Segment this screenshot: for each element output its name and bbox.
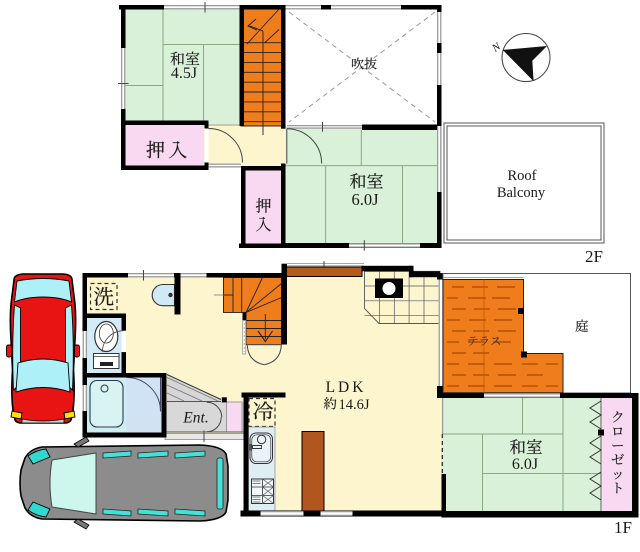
- svg-text:6.0J: 6.0J: [351, 190, 379, 209]
- svg-text:2F: 2F: [585, 247, 603, 266]
- svg-text:14.6J: 14.6J: [338, 397, 369, 413]
- svg-text:Balcony: Balcony: [497, 185, 546, 201]
- svg-text:Roof: Roof: [508, 168, 537, 184]
- svg-text:4.5J: 4.5J: [171, 65, 197, 82]
- svg-text:LDK: LDK: [326, 379, 367, 396]
- svg-text:1F: 1F: [614, 518, 632, 537]
- svg-text:Ent.: Ent.: [182, 410, 208, 427]
- svg-text:6.0J: 6.0J: [512, 456, 538, 473]
